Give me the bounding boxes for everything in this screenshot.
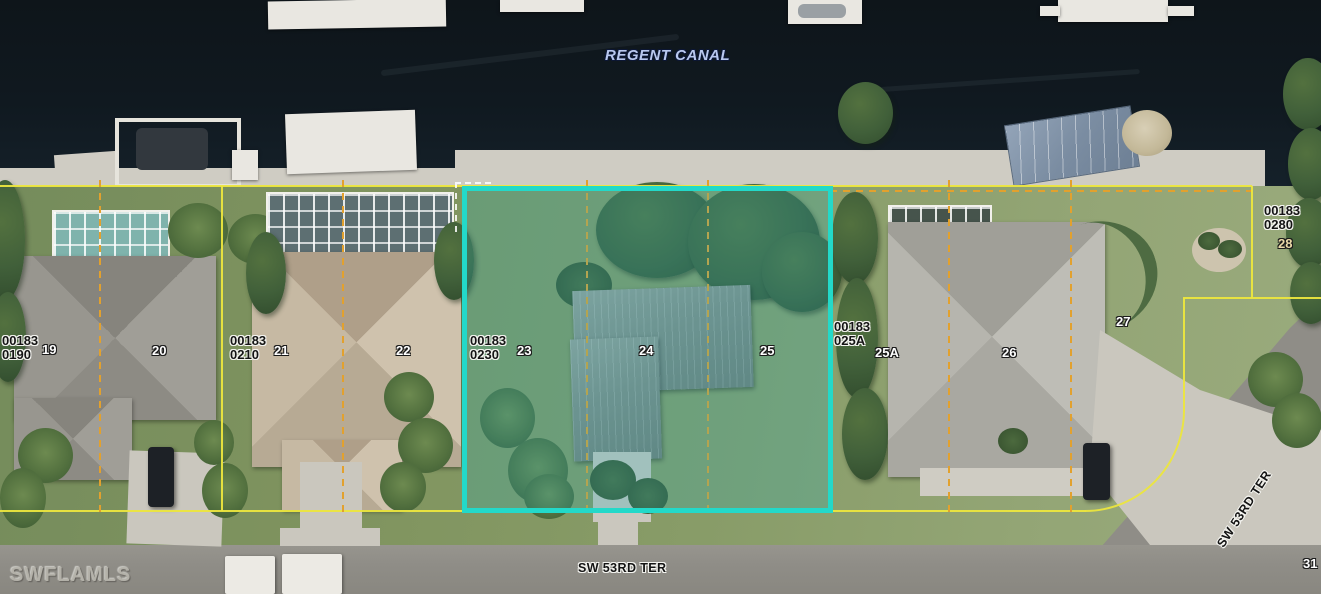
parcel-id-line: 00183 [1264,204,1300,218]
parcel-id-line: 00183 [834,320,870,334]
palm-tree [1272,393,1321,448]
dock-roof-top [268,0,446,30]
tree [832,192,878,284]
lot-number-23: 23 [517,343,531,358]
dock-far-right-top [1058,0,1168,22]
lot-number-19: 19 [42,342,56,357]
lot-number-22: 22 [396,343,410,358]
palm-tree [194,420,234,465]
driveway-apron [280,528,380,546]
parcel-id-0190: 00183 0190 [2,334,38,362]
lot-number-25A: 25A [875,345,899,360]
pool-cage-middle [266,192,454,258]
boat [798,4,846,18]
shrub [1198,232,1220,250]
parcel-id-line: 00183 [230,334,266,348]
dock-arm [1040,6,1060,16]
mls-watermark: SWFLAMLS [10,564,131,587]
parcel-id-0210: 00183 0210 [230,334,266,362]
street-label-bottom: SW 53RD TER [578,561,666,575]
parcel-id-0230: 00183 0230 [470,334,506,362]
shore-wedge [54,151,118,188]
shrub [998,428,1028,454]
parcel-id-line: 025A [834,334,870,348]
tree [838,82,893,144]
boundary-line-east [1183,298,1185,412]
lot-line-26-27 [1070,180,1072,512]
finger-dock [232,150,258,180]
parcel-id-line: 00183 [470,334,506,348]
tree [842,388,888,480]
parcel-line-0190-0210 [221,186,223,511]
parcel-id-line: 0280 [1264,218,1300,232]
dock-arm [1168,6,1194,16]
lot-number-20: 20 [152,343,166,358]
parcel-id-025A: 00183 025A [834,320,870,348]
aerial-parcel-map: REGENT CANAL 00183 0190 00183 0210 00183… [0,0,1321,594]
canal-name-label: REGENT CANAL [605,47,730,64]
parcel-id-0280: 00183 0280 [1264,204,1300,232]
lot-number-21: 21 [274,343,288,358]
shrub [1218,240,1242,258]
lot-number-28: 28 [1278,236,1292,251]
palm-tree [380,462,426,512]
parked-truck [148,447,174,507]
walkway-right [920,468,1095,496]
parcel-id-line: 0230 [470,348,506,362]
tree [246,232,286,314]
parcel-id-line: 0190 [2,348,38,362]
palm-tree [384,372,434,422]
lot-number-24: 24 [639,343,653,358]
truck-cab [225,556,275,594]
lot-line-21-22 [342,180,344,512]
truck-trailer [282,554,342,594]
boundary-dashed-waterfront [830,190,1252,192]
house-roof-left [14,256,216,420]
palm-tree [168,203,228,258]
lot-line-25a-26 [948,180,950,512]
parcel-id-line: 0210 [230,348,266,362]
parcel-id-line: 00183 [2,334,38,348]
palm-tree [0,468,46,528]
lot-line-19-20 [99,180,101,512]
boathouse-roof [285,110,417,175]
lot-number-25: 25 [760,343,774,358]
boundary-line-lot28 [1251,186,1253,298]
lot-number-27: 27 [1116,314,1130,329]
tiki-hut-roof [1122,110,1172,156]
dock-top-center [500,0,584,12]
lot-number-26: 26 [1002,345,1016,360]
lot-number-31-partial: 31 [1303,556,1317,571]
boat-on-lift [136,128,208,170]
subject-walkway [598,515,638,545]
